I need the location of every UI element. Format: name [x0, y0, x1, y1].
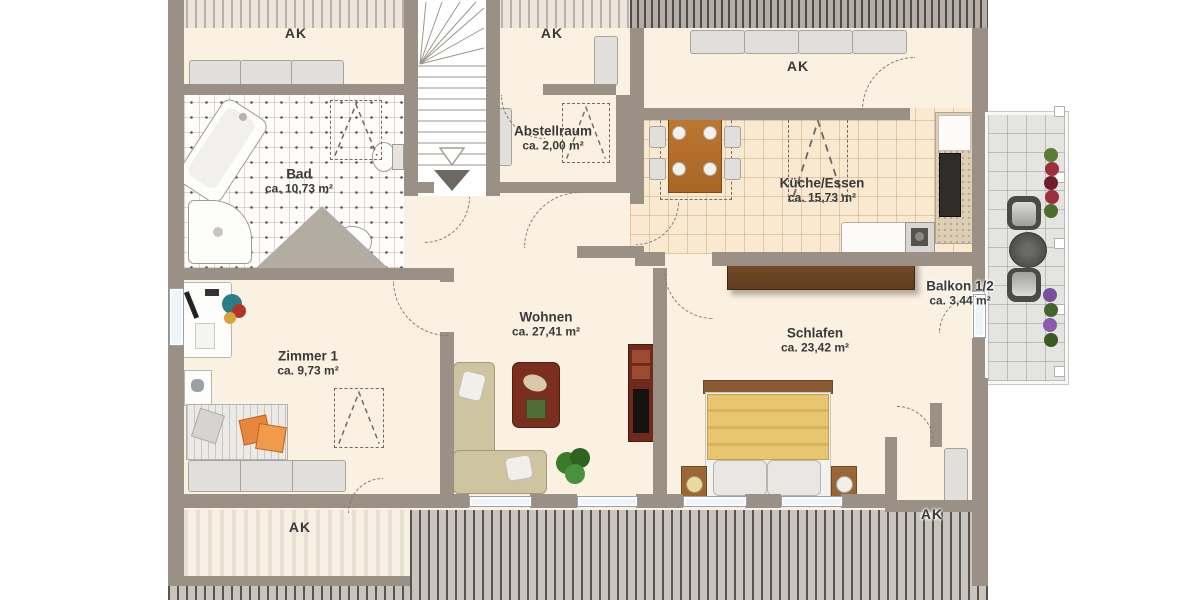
wall: [745, 494, 781, 508]
floor-plan: AK AK AK AK AK Bad ca. 10,73 m² Abstellr…: [0, 0, 1200, 600]
wall: [635, 252, 665, 266]
plate-icon: [703, 162, 717, 176]
dining-chair: [649, 126, 666, 148]
bed-pillow: [255, 423, 287, 453]
roof-hatch-top-left: [168, 0, 630, 28]
label-zimmer1: Zimmer 1 ca. 9,73 m²: [277, 348, 338, 377]
tv-cabinet: [628, 344, 656, 442]
wall: [168, 268, 440, 280]
railing-post: [1054, 366, 1065, 377]
label-kueche-essen: Küche/Essen ca. 15,73 m²: [780, 175, 865, 204]
kitchen-counter-right: [935, 112, 974, 244]
closet: [744, 30, 799, 54]
drain-icon: [213, 227, 223, 237]
label-bad: Bad ca. 10,73 m²: [265, 166, 333, 195]
toilet-tank: [392, 144, 404, 170]
plate-icon: [672, 126, 686, 140]
label-ak-top-left: AK: [285, 25, 307, 41]
wall: [636, 494, 683, 508]
room-name: Bad: [265, 166, 333, 182]
roof-slope-triangle: [256, 206, 388, 268]
dining-chair: [724, 126, 741, 148]
room-area: ca. 9,73 m²: [277, 364, 338, 378]
label-abstellraum: Abstellraum ca. 2,00 m²: [514, 123, 592, 152]
window: [469, 496, 532, 507]
wall: [653, 268, 667, 496]
staircase: [418, 0, 486, 196]
wall: [885, 437, 897, 503]
plate-icon: [703, 126, 717, 140]
room-name: Schlafen: [781, 325, 849, 341]
wall: [543, 84, 616, 95]
railing-post: [1054, 106, 1065, 117]
roof-hatch-bottom-left: [168, 586, 410, 600]
balcony-table: [1009, 232, 1047, 268]
coffee-table: [512, 362, 560, 428]
closet: [798, 30, 853, 54]
dining-table: [668, 117, 722, 193]
label-ak-kitchen: AK: [787, 58, 809, 74]
sofa-pillow: [504, 454, 534, 482]
room-area: ca. 15,73 m²: [780, 191, 865, 205]
room-name: Küche/Essen: [780, 175, 865, 191]
label-ak-top-middle: AK: [541, 25, 563, 41]
room-name: Abstellraum: [514, 123, 592, 139]
room-area: ca. 10,73 m²: [265, 182, 333, 196]
desk-chair: [218, 292, 252, 332]
bed-pillow: [713, 460, 767, 496]
wall: [486, 182, 630, 193]
stairs-down-arrow-icon: [434, 170, 470, 191]
room-name: Balkon 1/2: [926, 278, 994, 294]
window: [577, 496, 638, 507]
label-ak-bottom-right: AK: [921, 506, 943, 522]
dining-chair: [649, 158, 666, 180]
window: [781, 496, 843, 507]
wall: [404, 0, 418, 196]
label-ak-bottom-left: AK: [289, 519, 311, 535]
closet: [690, 30, 745, 54]
kitchen-appliance: [939, 153, 961, 217]
flower-box: [1043, 148, 1060, 220]
wall: [972, 338, 985, 378]
bed-pillow: [767, 460, 821, 496]
balcony-chair: [1007, 268, 1041, 302]
wall: [972, 112, 985, 292]
closet: [944, 448, 968, 506]
room-area: ca. 23,42 m²: [781, 341, 849, 355]
kitchen-counter-bottom: [841, 222, 907, 254]
bed-pillow: [191, 408, 225, 445]
room-name: Wohnen: [512, 309, 580, 325]
wall: [712, 252, 972, 266]
wall: [404, 182, 434, 193]
roof-hatch-bottom: [410, 508, 988, 600]
roof-window-icon: [330, 100, 382, 160]
wall: [486, 0, 500, 196]
room-area: ca. 2,00 m²: [514, 139, 592, 153]
single-bed: [186, 404, 288, 460]
balcony-chair: [1007, 196, 1041, 230]
railing-post: [1054, 238, 1065, 249]
tv-icon: [633, 389, 649, 433]
roof-window-icon: [334, 388, 384, 448]
stove: [905, 222, 935, 254]
room-area: ca. 27,41 m²: [512, 325, 580, 339]
lamp-icon: [686, 476, 703, 493]
wall: [530, 494, 577, 508]
flower-box: [1042, 288, 1059, 348]
closet: [852, 30, 907, 54]
wall: [168, 494, 469, 508]
wall: [841, 494, 885, 508]
label-wohnen: Wohnen ca. 27,41 m²: [512, 309, 580, 338]
bed-blanket: [707, 394, 829, 460]
label-schlafen: Schlafen ca. 23,42 m²: [781, 325, 849, 354]
stairs-direction-outline-icon: [440, 148, 464, 165]
wall: [184, 84, 404, 95]
wall: [440, 332, 454, 494]
room-name: Zimmer 1: [277, 348, 338, 364]
plant-icon: [556, 448, 594, 486]
roof-hatch-top-right: [630, 0, 988, 28]
wall: [616, 95, 630, 193]
wall: [440, 268, 454, 282]
window: [169, 288, 184, 346]
closet: [594, 36, 618, 86]
small-shelf: [184, 370, 212, 406]
wall: [972, 28, 988, 112]
closet: [188, 460, 346, 492]
wall: [577, 246, 644, 258]
lamp-icon: [836, 476, 853, 493]
wall: [972, 378, 988, 586]
room-area: ca. 3,44 m²: [926, 294, 994, 308]
label-balkon: Balkon 1/2 ca. 3,44 m²: [926, 278, 994, 307]
wall: [184, 576, 410, 586]
window: [683, 496, 747, 507]
dining-chair: [724, 158, 741, 180]
plate-icon: [672, 162, 686, 176]
